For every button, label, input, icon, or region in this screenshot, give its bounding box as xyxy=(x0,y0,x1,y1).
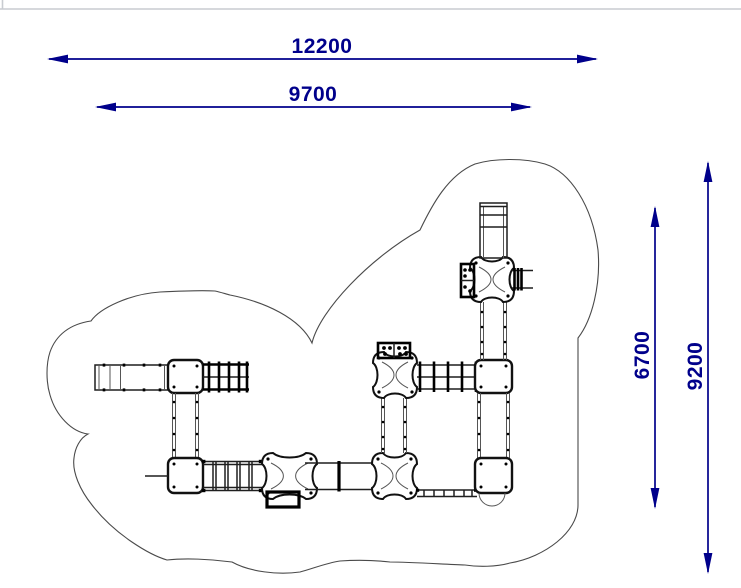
grab-bars xyxy=(512,268,533,291)
pole-arc xyxy=(479,493,505,506)
dimension-height-inner: 6700 xyxy=(631,206,659,509)
arrow-right-icon xyxy=(511,103,532,112)
clover-platform-3 xyxy=(373,343,417,398)
ladder-right xyxy=(478,393,510,458)
plan-drawing: 12200 9700 6700 9200 xyxy=(0,0,741,588)
play-structure xyxy=(95,203,533,507)
dimension-width-inner: 9700 xyxy=(95,83,532,111)
platform-bottom-left xyxy=(145,458,203,493)
dimension-width-outer: 12200 xyxy=(47,35,598,63)
arrow-down-icon xyxy=(704,553,713,574)
arrow-up-icon xyxy=(704,161,713,182)
left-slide xyxy=(95,364,168,392)
dimension-label-9200: 9200 xyxy=(684,342,707,391)
arrow-up-icon xyxy=(651,206,660,227)
slide-edge-bolts xyxy=(104,364,160,392)
arrow-left-icon xyxy=(95,103,116,112)
bridge-middle xyxy=(382,398,407,453)
arrow-left-icon xyxy=(47,55,68,64)
low-ladder xyxy=(416,489,477,497)
tower-slide xyxy=(480,203,507,258)
clover-platform-2 xyxy=(372,453,417,499)
drawing-sheet: 12200 9700 6700 9200 xyxy=(0,0,741,588)
dimension-label-9700: 9700 xyxy=(289,83,338,106)
clover-platform-1 xyxy=(262,453,317,507)
sheet-frame-edge xyxy=(0,0,741,9)
bridge-left xyxy=(173,393,199,458)
platform-bottom-right xyxy=(475,458,512,506)
bridge-tower xyxy=(481,302,507,360)
platform-mid-right xyxy=(475,360,512,393)
dimension-height-outer: 9200 xyxy=(684,161,712,574)
arrow-right-icon xyxy=(577,55,598,64)
net-bridge xyxy=(417,362,477,393)
ladder-bottom-left xyxy=(202,460,262,492)
arrow-down-icon xyxy=(651,488,660,509)
clover-platform-tower xyxy=(461,257,533,302)
climbing-grid xyxy=(203,362,249,393)
dimension-label-12200: 12200 xyxy=(292,35,353,58)
platform-top-left xyxy=(168,360,203,393)
dimension-label-6700: 6700 xyxy=(631,331,654,380)
safety-area-outline xyxy=(47,160,599,574)
